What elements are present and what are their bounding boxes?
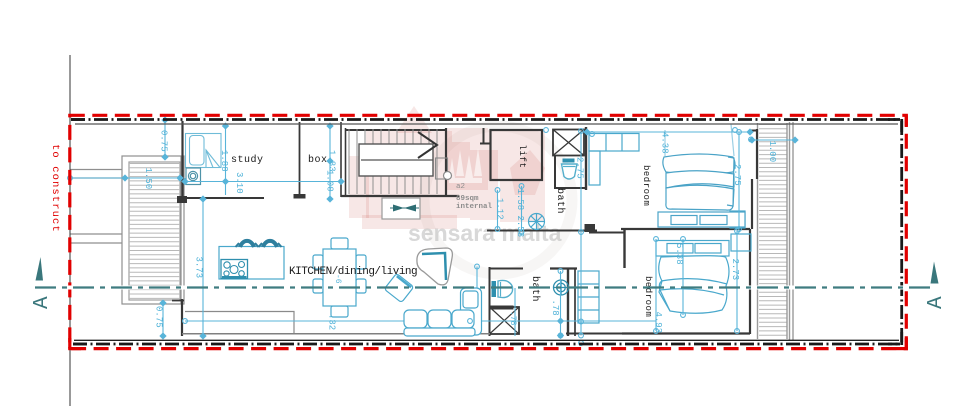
svg-text:5.38: 5.38	[674, 243, 684, 265]
svg-text:study: study	[231, 154, 264, 166]
svg-text:89sqm: 89sqm	[456, 195, 479, 203]
svg-text:bedroom: bedroom	[643, 276, 653, 317]
svg-text:.78: .78	[550, 300, 560, 316]
svg-text:1.83: 1.83	[327, 150, 337, 172]
svg-text:4.38: 4.38	[660, 132, 670, 154]
svg-text:.78: .78	[508, 311, 517, 326]
svg-text:2.75: 2.75	[732, 164, 742, 186]
svg-text:2.73: 2.73	[730, 259, 740, 281]
svg-text:A: A	[925, 296, 948, 309]
svg-text:.32: .32	[327, 314, 337, 330]
svg-text:box: box	[308, 154, 328, 166]
svg-text:bedroom: bedroom	[641, 165, 651, 206]
svg-text:3.10: 3.10	[234, 172, 244, 194]
svg-text:0.75: 0.75	[159, 130, 169, 152]
svg-text:2.75: 2.75	[575, 157, 585, 179]
svg-text:3.73: 3.73	[194, 257, 204, 279]
svg-text:bath: bath	[529, 276, 541, 302]
svg-text:to construct: to construct	[49, 144, 61, 233]
svg-text:KITCHEN/dining/living: KITCHEN/dining/living	[289, 266, 417, 278]
svg-text:4.93: 4.93	[653, 312, 663, 334]
svg-text:lift: lift	[517, 145, 527, 169]
svg-text:1.50: 1.50	[143, 168, 153, 190]
svg-text:A: A	[31, 296, 54, 309]
svg-text:1.88: 1.88	[219, 150, 229, 172]
svg-text:1.00: 1.00	[767, 141, 777, 163]
svg-text:1.58 2.58: 1.58 2.58	[515, 189, 525, 238]
svg-text:1.12: 1.12	[495, 198, 505, 220]
svg-text:bath: bath	[554, 188, 566, 214]
svg-text:internal: internal	[456, 203, 493, 211]
svg-text:0.75: 0.75	[154, 306, 164, 328]
svg-text:1.00: 1.00	[325, 170, 335, 192]
svg-text:a2: a2	[456, 183, 465, 191]
